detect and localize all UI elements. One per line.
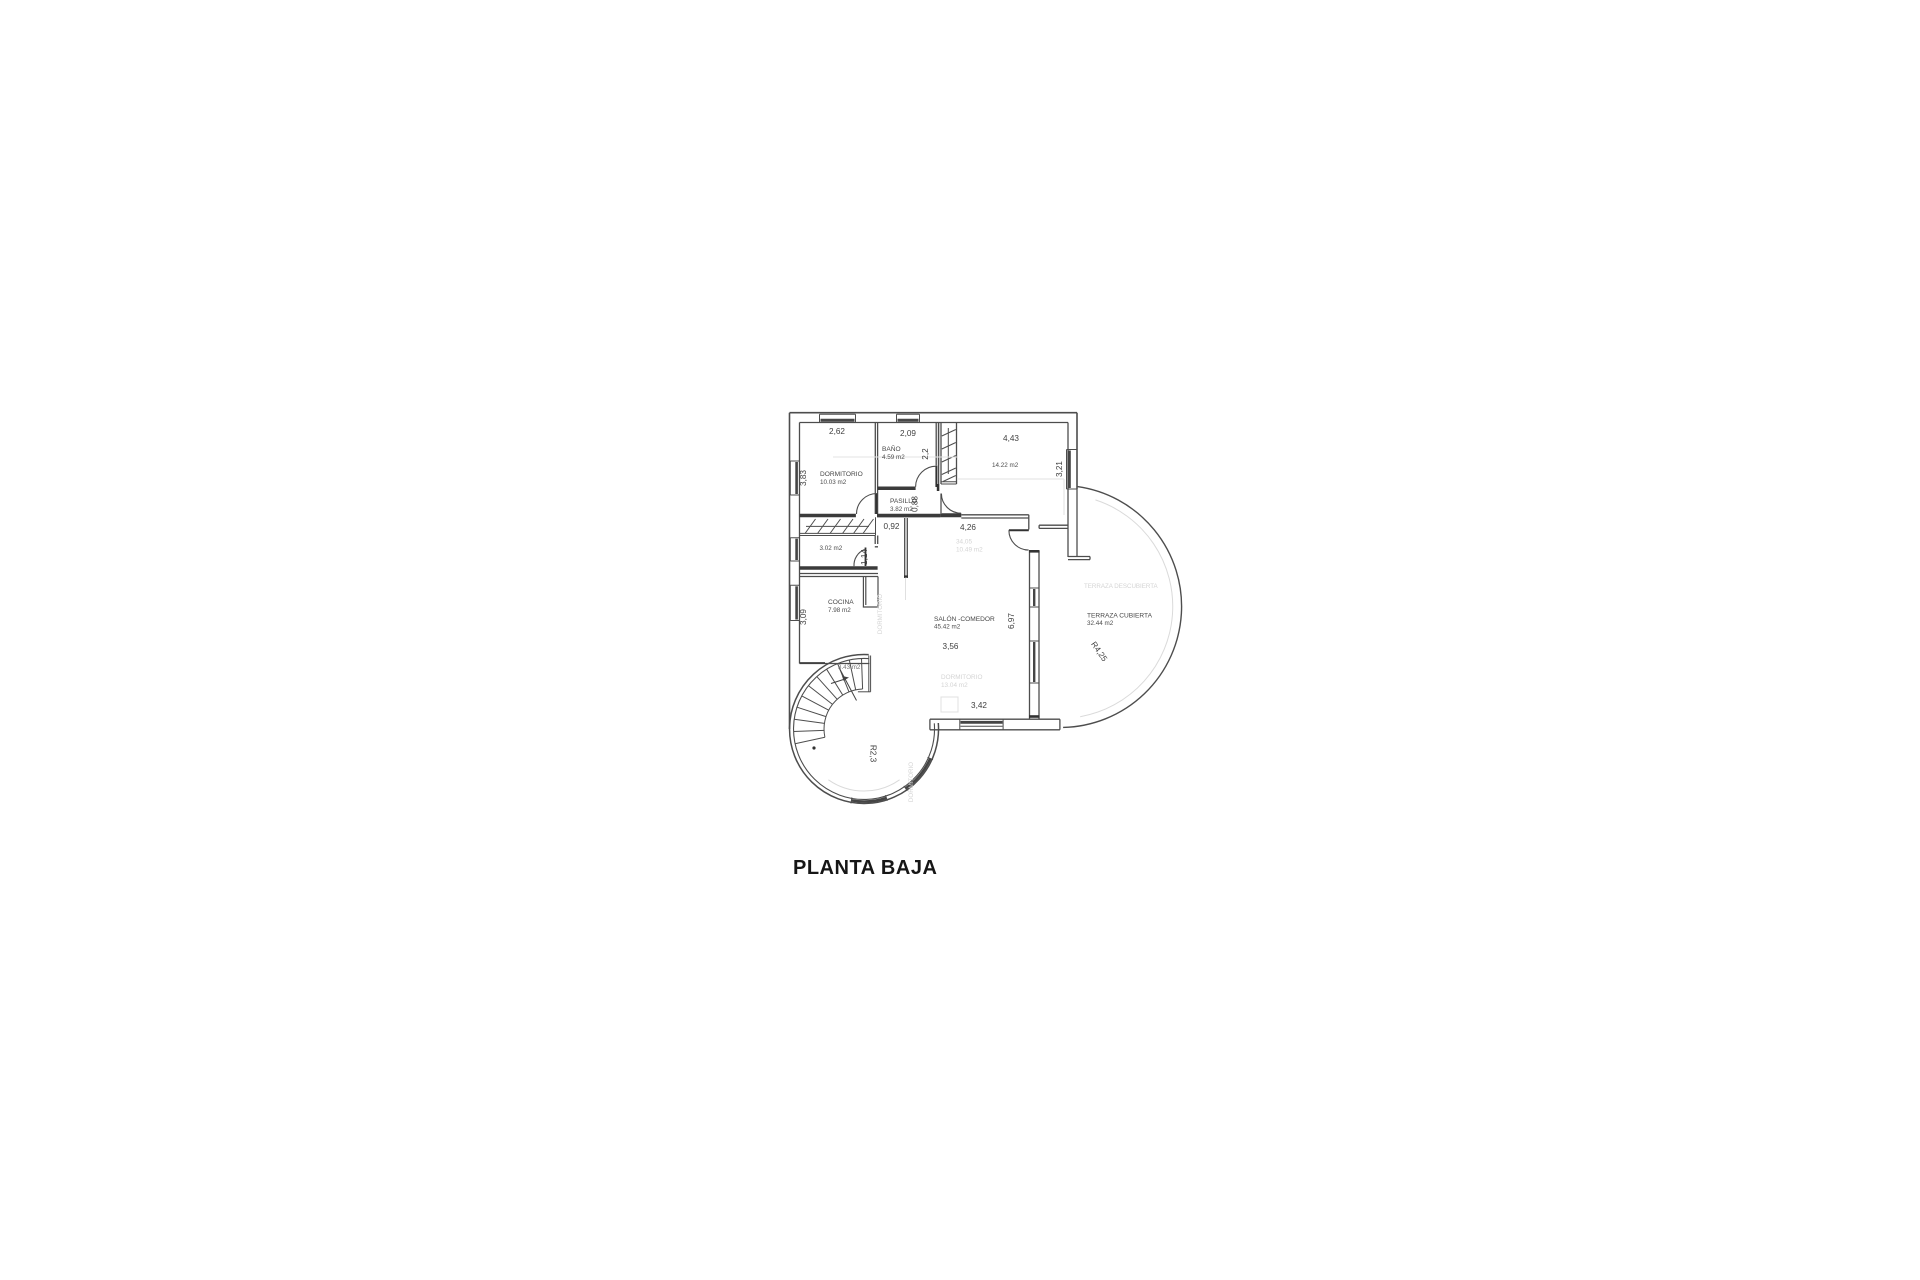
svg-text:3.43 m2: 3.43 m2 [838, 664, 861, 671]
svg-text:3,21: 3,21 [1055, 461, 1064, 477]
svg-text:DORMITORIO: DORMITORIO [941, 674, 982, 681]
svg-text:2,09: 2,09 [900, 429, 916, 438]
svg-text:1,14: 1,14 [860, 549, 869, 565]
svg-text:13.04 m2: 13.04 m2 [941, 682, 968, 689]
svg-text:DORMITORIO: DORMITORIO [820, 471, 863, 478]
svg-text:TERRAZA DESCUBIERTA: TERRAZA DESCUBIERTA [1084, 583, 1159, 590]
svg-text:34,05: 34,05 [956, 539, 972, 546]
svg-text:0,92: 0,92 [884, 522, 900, 531]
svg-text:10.49 m2: 10.49 m2 [956, 547, 983, 554]
svg-text:0,88: 0,88 [911, 496, 920, 512]
svg-text:14.22 m2: 14.22 m2 [992, 462, 1019, 469]
svg-text:4,43: 4,43 [1003, 434, 1019, 443]
svg-text:DORMITORIO: DORMITORIO [877, 594, 884, 634]
svg-text:10.03 m2: 10.03 m2 [820, 479, 847, 486]
svg-text:45.42 m2: 45.42 m2 [934, 624, 961, 631]
svg-text:TERRAZA CUBIERTA: TERRAZA CUBIERTA [1087, 613, 1153, 620]
svg-text:PLANTA BAJA: PLANTA BAJA [793, 857, 937, 879]
svg-text:3,83: 3,83 [799, 470, 808, 486]
svg-text:7.98 m2: 7.98 m2 [828, 607, 851, 614]
svg-text:3,56: 3,56 [943, 642, 959, 651]
svg-text:2,2: 2,2 [921, 448, 930, 460]
svg-text:4.59 m2: 4.59 m2 [882, 454, 905, 461]
svg-text:DORMITORIO: DORMITORIO [908, 762, 915, 802]
svg-text:3,42: 3,42 [971, 701, 987, 710]
svg-text:6,97: 6,97 [1007, 613, 1016, 629]
svg-text:3.02 m2: 3.02 m2 [820, 545, 843, 552]
svg-text:4,26: 4,26 [960, 523, 976, 532]
svg-text:32.44 m2: 32.44 m2 [1087, 620, 1114, 627]
svg-text:COCINA: COCINA [828, 599, 854, 606]
svg-text:R2,3: R2,3 [869, 745, 878, 763]
svg-text:3,09: 3,09 [799, 609, 808, 625]
svg-text:BAÑO: BAÑO [882, 444, 901, 453]
svg-text:SALÓN -COMEDOR: SALÓN -COMEDOR [934, 614, 995, 623]
svg-text:2,62: 2,62 [829, 427, 845, 436]
